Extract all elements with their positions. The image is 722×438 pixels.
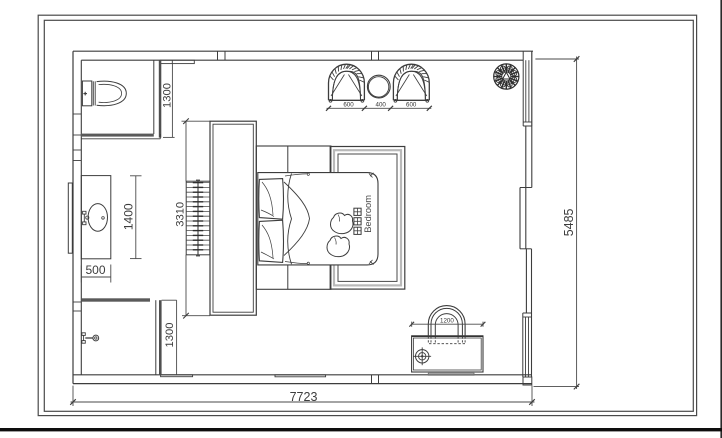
svg-text:600: 600: [406, 102, 417, 109]
svg-text:1300: 1300: [164, 323, 176, 348]
svg-text:1200: 1200: [440, 318, 454, 325]
svg-text:5485: 5485: [562, 208, 576, 236]
svg-text:3310: 3310: [174, 202, 186, 227]
svg-text:600: 600: [343, 102, 354, 109]
svg-text:1300: 1300: [161, 83, 173, 108]
svg-text:1400: 1400: [122, 203, 136, 230]
svg-text:400: 400: [376, 102, 387, 109]
svg-text:Bedroom: Bedroom: [363, 195, 373, 233]
svg-text:500: 500: [85, 263, 105, 277]
svg-text:7723: 7723: [290, 390, 318, 404]
